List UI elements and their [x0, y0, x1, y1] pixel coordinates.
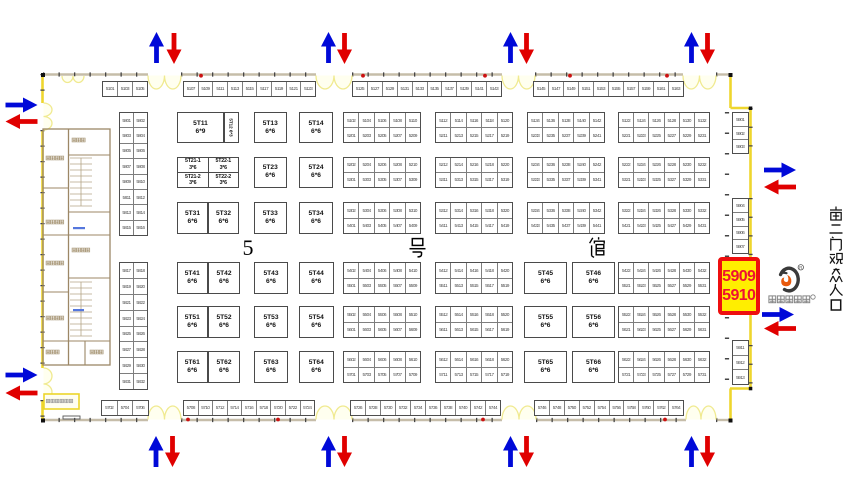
- svg-text:R: R: [799, 265, 802, 270]
